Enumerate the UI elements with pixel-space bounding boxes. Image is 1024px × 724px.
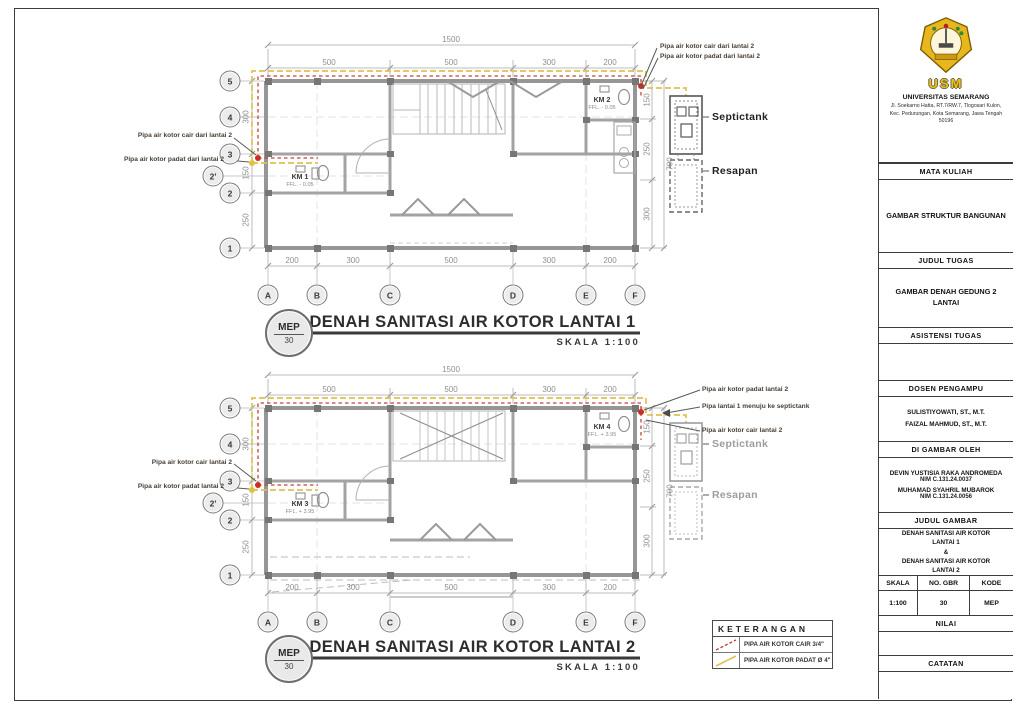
legend: KETERANGAN PIPA AIR KOTOR CAIR 3/4" PIPA… [712,620,833,669]
grid-bubble-col: A [258,612,279,633]
dim-label: 300 [542,385,555,394]
dim-label: 700 [666,157,675,170]
dosen-name: FAIZAL MAHMUD, ST., M.T. [905,419,987,431]
catatan-header: CATATAN [879,656,1013,672]
no-gbr-value: 30 [918,591,970,615]
septictank-label: Septictank [712,438,768,450]
judul-gambar-header: JUDUL GAMBAR [879,513,1013,529]
title-block-logo-cell: USM UNIVERSITAS SEMARANG Jl. Soekarno Ha… [879,8,1013,163]
usm-logo-icon [917,16,975,74]
badge-number: 30 [285,335,294,345]
drawing-sheet: 1500 500 500 300 200 200 300 500 300 200… [0,0,1024,724]
usm-abbr: USM [929,76,964,91]
grid-bubble-row: 1 [220,565,241,586]
drafter: MUHAMAD SYAHRIL MUBAROK NIM C.131.24.005… [898,487,995,500]
plan2-scale: SKALA 1:100 [556,662,640,673]
pipe-annotation: Pipa air kotor padat dari lantai 2 [660,53,760,60]
resapan-label: Resapan [712,165,758,177]
grid-bubble-row: 5 [220,71,241,92]
dim-label: 200 [603,256,616,265]
dosen-name: SULISTIYOWATI, ST., M.T. [907,407,985,419]
dim-label: 300 [542,256,555,265]
room-label: KM 1 [276,174,324,181]
mata-kuliah-text: GAMBAR STRUKTUR BANGUNAN [886,211,1006,222]
dim-label: 200 [603,385,616,394]
digambar-header: DI GAMBAR OLEH [879,442,1013,458]
mata-kuliah-header: MATA KULIAH [879,163,1013,180]
judul-gambar-line: DENAH SANITASI AIR KOTOR [902,529,990,538]
grid-bubble-col: B [307,612,328,633]
dim-label: 300 [242,437,251,450]
room-label: KM 2 [584,97,620,104]
legend-title: KETERANGAN [713,621,832,637]
dosen-header: DOSEN PENGAMPU [879,381,1013,397]
legend-item: PIPA AIR KOTOR PADAT Ø 4" [713,653,832,668]
drafter-name: MUHAMAD SYAHRIL MUBAROK [898,487,995,494]
asistensi-value [879,344,1013,381]
grid-bubble-col: F [625,285,646,306]
judul-gambar-value: DENAH SANITASI AIR KOTOR LANTAI 1 & DENA… [879,529,1013,576]
grid-bubble-col: F [625,612,646,633]
dim-label: 250 [643,142,652,155]
dim-label: 150 [242,493,251,506]
grid-bubble-col: D [503,285,524,306]
grid-bubble-row: 5 [220,398,241,419]
asistensi-header: ASISTENSI TUGAS [879,328,1013,344]
skala-value: 1:100 [879,591,918,615]
dim-label: 500 [322,385,335,394]
pipe-annotation: Pipa air kotor padat lantai 2 [702,386,788,393]
nilai-value [879,632,1013,656]
drafter-nim: NIM C.131.24.0037 [890,477,1003,483]
grid-bubble-row: 4 [220,107,241,128]
plan2-title: DENAH SANITASI AIR KOTOR LANTAI 2 [300,638,645,657]
dim-label: 300 [242,110,251,123]
dim-label: 300 [643,207,652,220]
room-label: KM 4 [584,424,620,431]
grid-bubble-col: C [380,612,401,633]
dim-label: 250 [242,213,251,226]
dim-label: 500 [444,385,457,394]
room-ffl: FFL. - 0.05 [276,182,324,188]
grid-bubble-col: B [307,285,328,306]
dim-label: 300 [346,256,359,265]
grid-bubble-row: 4 [220,434,241,455]
drafter: DEVIN YUSTISIA RAKA ANDROMEDA NIM C.131.… [890,470,1003,483]
dosen-value: SULISTIYOWATI, ST., M.T. FAIZAL MAHMUD, … [879,397,1013,442]
dim-label: 150 [242,166,251,179]
room-ffl: FFL. + 3.95 [584,432,620,438]
plan1-scale: SKALA 1:100 [556,337,640,348]
dim-label: 1500 [442,35,460,44]
judul-gambar-line: & [944,548,948,557]
badge-code: MEP [274,322,305,335]
judul-tugas-value: GAMBAR DENAH GEDUNG 2 LANTAI [879,269,1013,328]
dim-label: 300 [542,583,555,592]
digambar-value: DEVIN YUSTISIA RAKA ANDROMEDA NIM C.131.… [879,458,1013,513]
judul-tugas-header: JUDUL TUGAS [879,253,1013,269]
grid-bubble-col: A [258,285,279,306]
dim-label: 250 [242,540,251,553]
room-ffl: FFL. + 3.95 [276,509,324,515]
dim-label: 300 [346,583,359,592]
pipe-annotation: Pipa air kotor padat dari lantai 2 [124,156,224,163]
dim-label: 500 [322,58,335,67]
pipe-cair-swatch-icon [713,637,740,652]
title-block: USM UNIVERSITAS SEMARANG Jl. Soekarno Ha… [878,8,1013,699]
pipe-annotation: Pipa lantai 1 menuju ke septictank [702,403,809,410]
kode-value: MEP [970,591,1013,615]
legend-item-label: PIPA AIR KOTOR PADAT Ø 4" [740,657,831,664]
plan1-badge: MEP 30 [265,309,313,357]
plan2-badge: MEP 30 [265,635,313,683]
dim-label: 500 [444,256,457,265]
dim-label: 200 [285,256,298,265]
kode-header: KODE [970,576,1013,590]
grid-bubble-row: 1 [220,238,241,259]
catatan-value [879,672,1013,699]
nilai-header: NILAI [879,616,1013,632]
pipe-annotation: Pipa air kotor cair dari lantai 2 [138,132,232,139]
dim-label: 250 [643,469,652,482]
dim-label: 200 [285,583,298,592]
dim-label: 150 [643,420,652,433]
grid-bubble-row: 2 [220,510,241,531]
room-label: KM 3 [276,501,324,508]
pipe-annotation: Pipa air kotor cair lantai 2 [702,427,782,434]
badge-code: MEP [274,648,305,661]
legend-item-label: PIPA AIR KOTOR CAIR 3/4" [740,641,824,648]
grid-bubble-row: 2' [203,493,224,514]
dim-label: 500 [444,583,457,592]
badge-number: 30 [285,661,294,671]
university-address: Jl. Soekarno Hatta, RT.7/RW.7, Tlogosari… [879,101,1013,126]
plan1-title: DENAH SANITASI AIR KOTOR LANTAI 1 [300,313,645,332]
septictank-label: Septictank [712,111,768,123]
no-gbr-header: NO. GBR [918,576,970,590]
grid-bubble-col: E [576,612,597,633]
grid-bubble-row: 2' [203,166,224,187]
dim-label: 200 [603,583,616,592]
dim-label: 150 [643,93,652,106]
dim-label: 200 [603,58,616,67]
pipe-padat-swatch-icon [713,653,740,668]
grid-bubble-col: D [503,612,524,633]
drafter-nim: NIM C.131.24.0056 [898,494,995,500]
resapan-label: Resapan [712,489,758,501]
room-ffl: FFL. - 0.05 [584,105,620,111]
grid-bubble-col: E [576,285,597,306]
legend-item: PIPA AIR KOTOR CAIR 3/4" [713,637,832,653]
judul-tugas-text: GAMBAR DENAH GEDUNG 2 LANTAI [883,287,1009,309]
grid-bubble-col: C [380,285,401,306]
mata-kuliah-value: GAMBAR STRUKTUR BANGUNAN [879,180,1013,253]
pipe-annotation: Pipa air kotor padat lantai 2 [138,483,224,490]
dim-label: 1500 [442,365,460,374]
pipe-annotation: Pipa air kotor cair dari lantai 2 [660,43,754,50]
dim-label: 300 [643,534,652,547]
judul-gambar-line: LANTAI 2 [932,566,959,575]
drafter-name: DEVIN YUSTISIA RAKA ANDROMEDA [890,470,1003,477]
judul-gambar-line: DENAH SANITASI AIR KOTOR [902,557,990,566]
skala-header: SKALA [879,576,918,590]
meta-value-row: 1:100 30 MEP [879,591,1013,616]
university-name: UNIVERSITAS SEMARANG [903,94,990,101]
judul-gambar-line: LANTAI 1 [932,538,959,547]
dim-label: 300 [542,58,555,67]
pipe-annotation: Pipa air kotor cair lantai 2 [152,459,232,466]
grid-bubble-row: 2 [220,183,241,204]
meta-header-row: SKALA NO. GBR KODE [879,576,1013,591]
dim-label: 700 [666,484,675,497]
dim-label: 500 [444,58,457,67]
